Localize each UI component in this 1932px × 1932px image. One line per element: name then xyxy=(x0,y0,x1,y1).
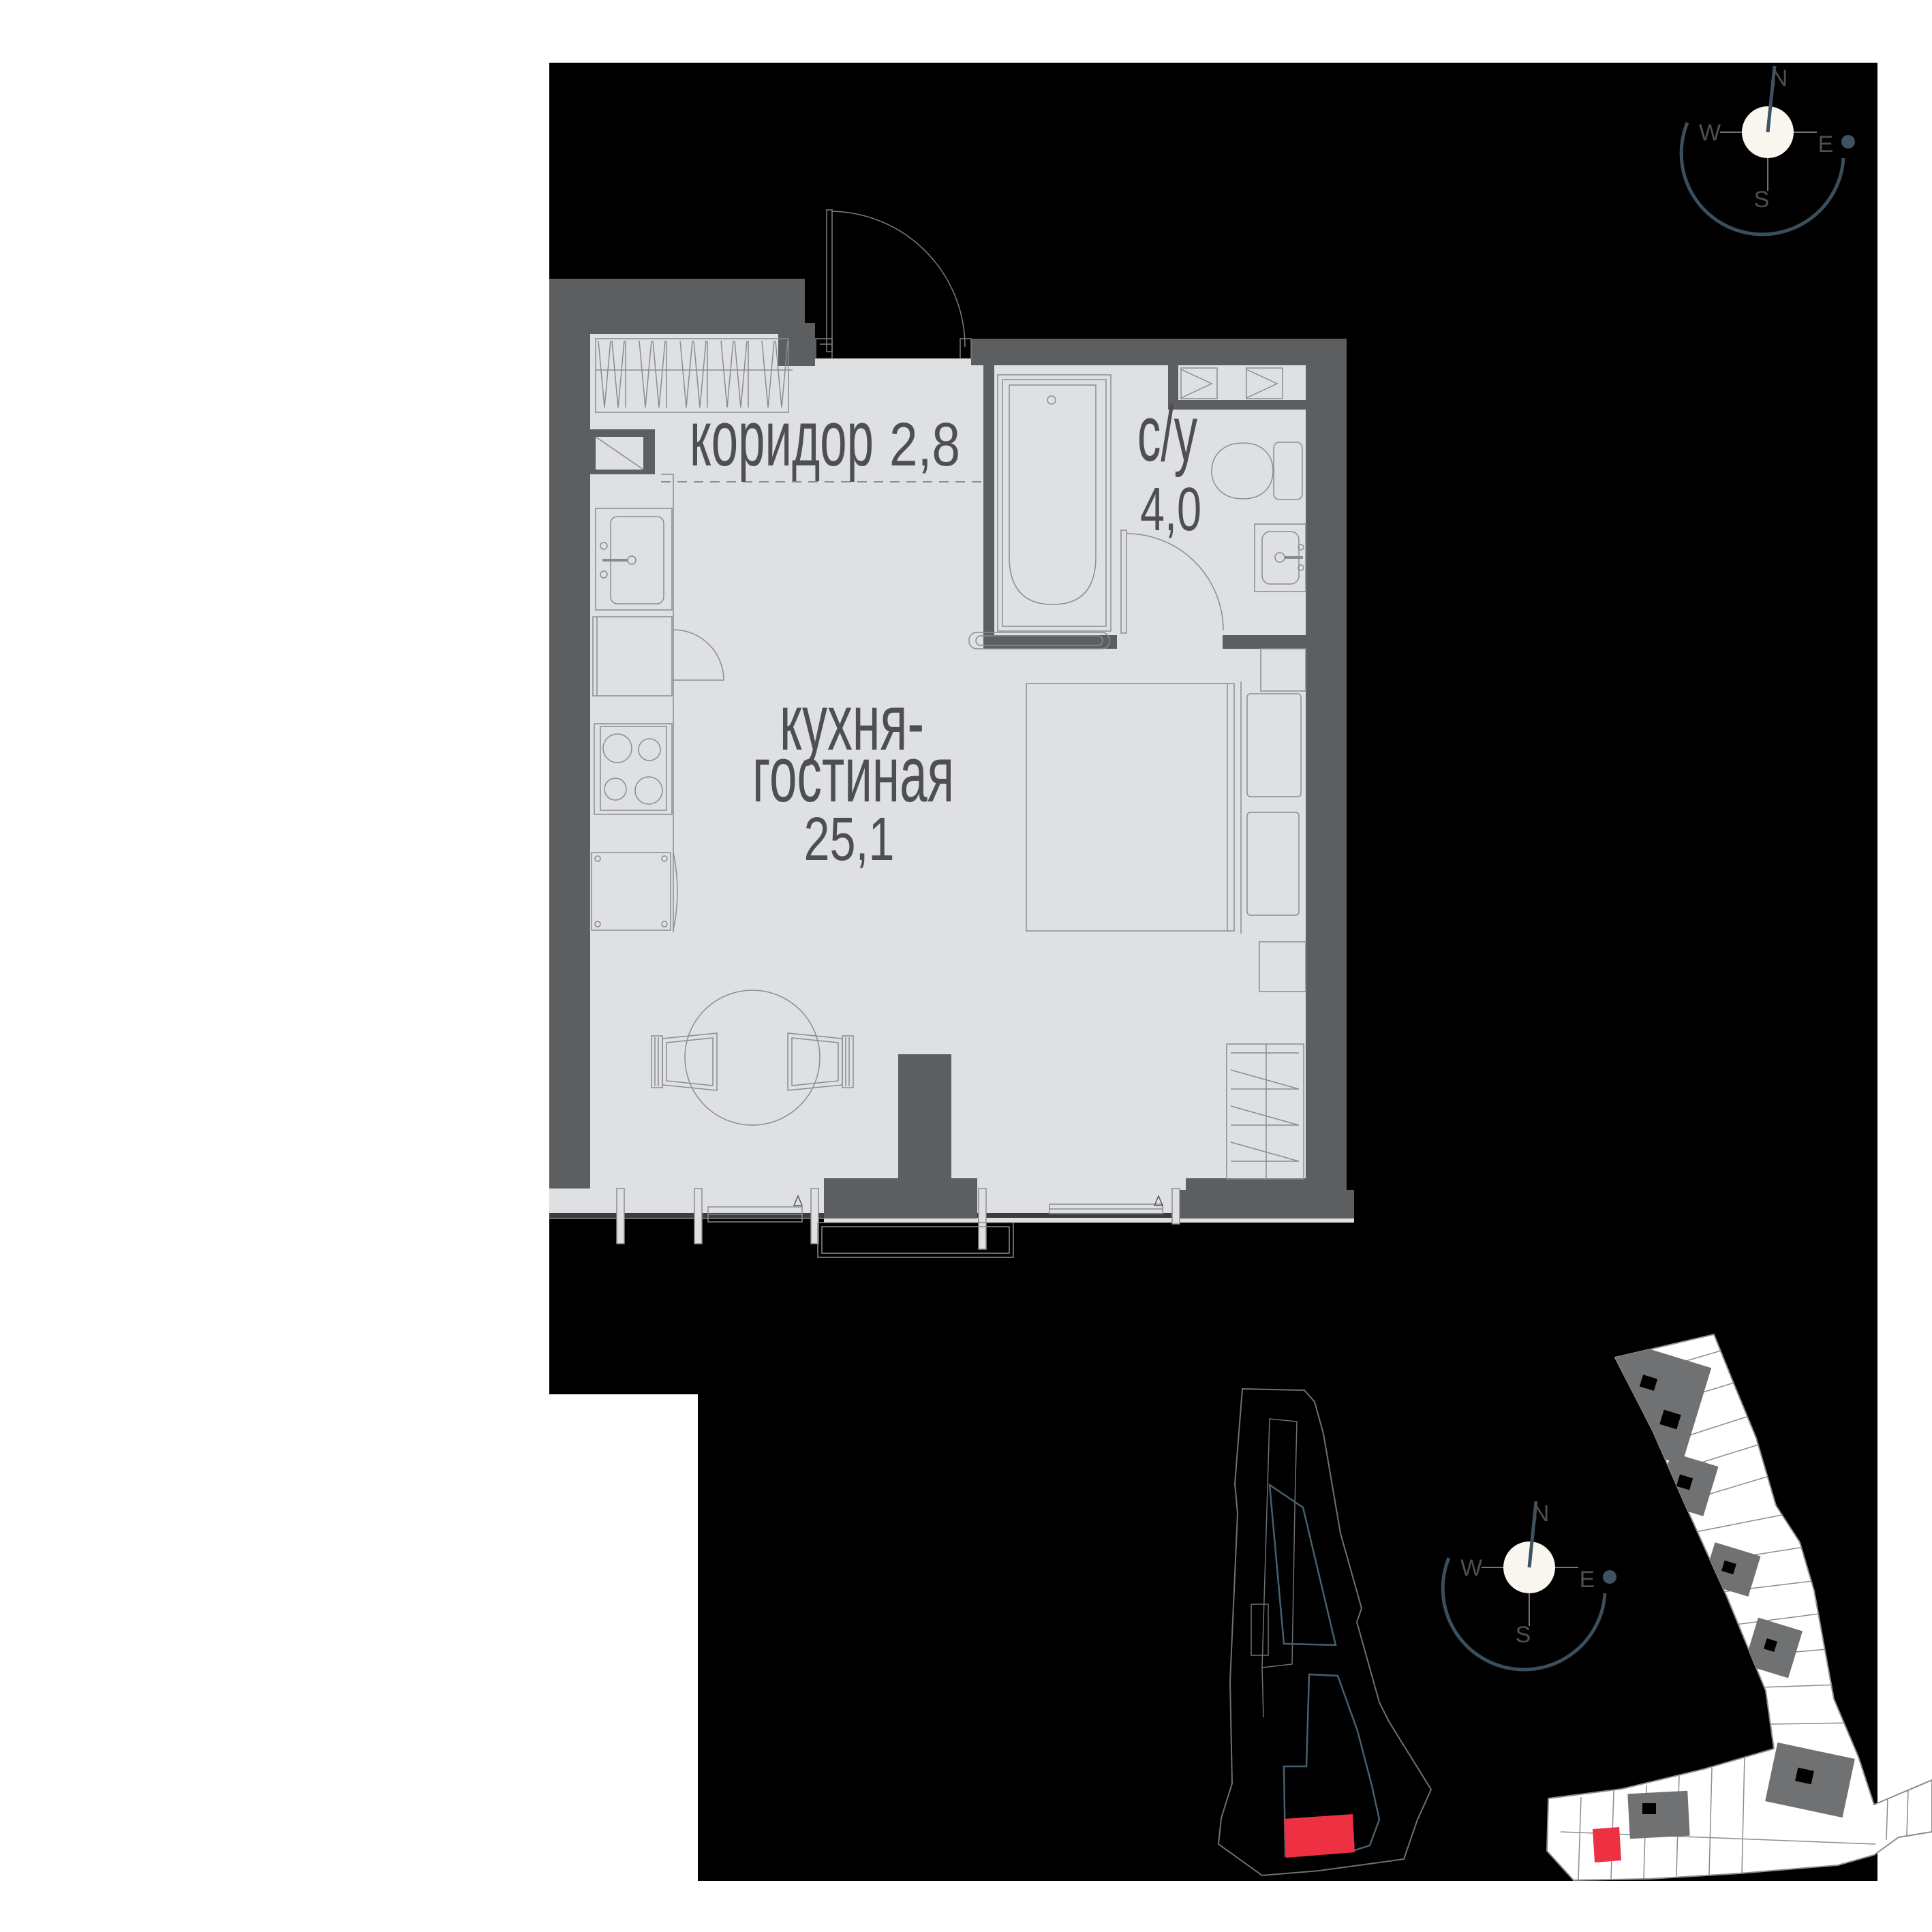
svg-text:2,8: 2,8 xyxy=(889,411,960,479)
svg-text:с/у: с/у xyxy=(1137,389,1197,478)
svg-text:25,1: 25,1 xyxy=(804,806,895,874)
svg-text:коридор: коридор xyxy=(690,394,874,482)
svg-text:4,0: 4,0 xyxy=(1140,476,1201,544)
